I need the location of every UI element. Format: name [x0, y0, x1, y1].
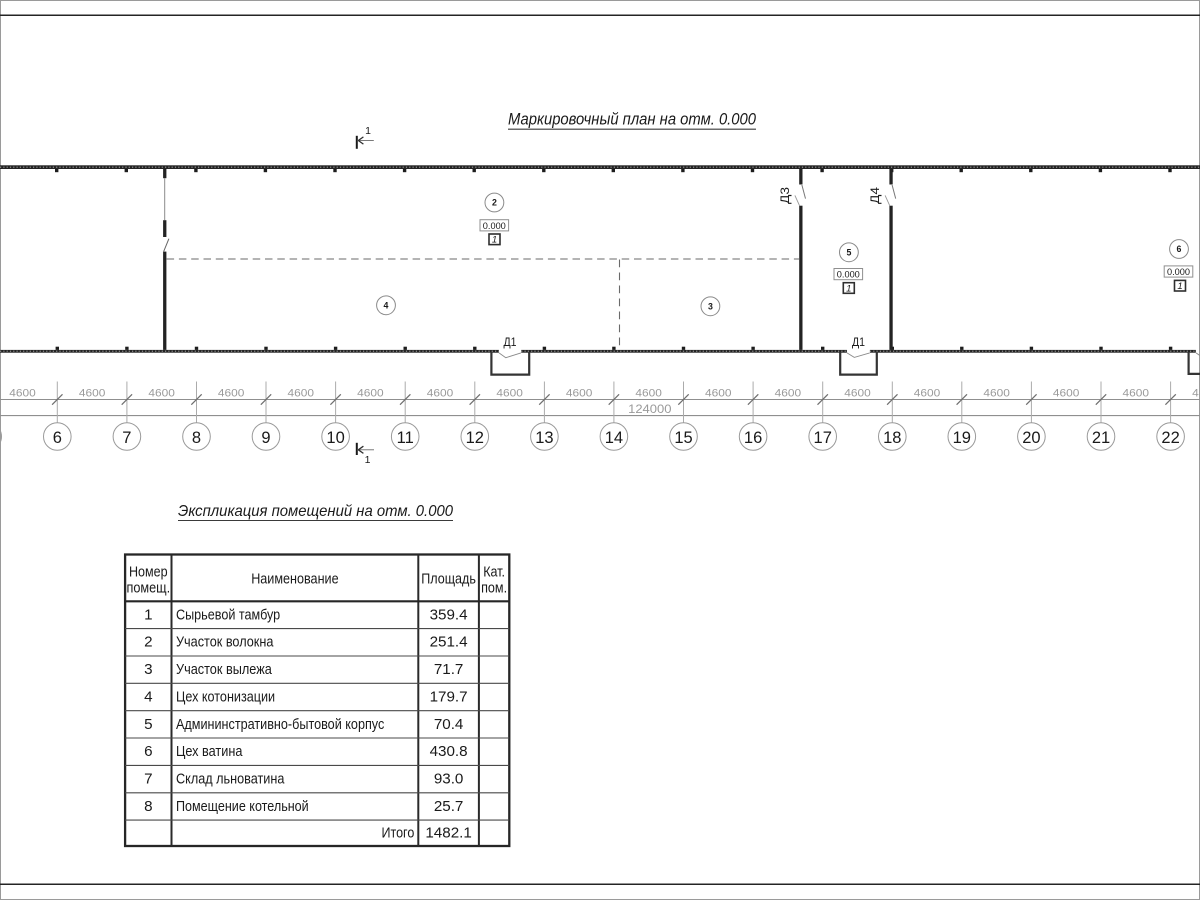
svg-text:1482.1: 1482.1	[425, 824, 471, 841]
svg-text:Экспликация помещений на отм.: Экспликация помещений на отм. 0.000	[178, 503, 453, 520]
svg-text:Цех ватина: Цех ватина	[176, 743, 243, 760]
svg-text:0.000: 0.000	[1167, 267, 1190, 277]
svg-text:4600: 4600	[9, 388, 36, 400]
svg-text:4600: 4600	[496, 388, 523, 400]
svg-text:4600: 4600	[775, 388, 802, 400]
svg-text:16: 16	[744, 429, 762, 447]
svg-text:4600: 4600	[983, 388, 1010, 400]
svg-text:Маркировочный план на отм. 0.0: Маркировочный план на отм. 0.000	[508, 110, 756, 129]
svg-text:18: 18	[883, 429, 901, 447]
svg-text:1: 1	[492, 235, 497, 246]
svg-text:Кат.: Кат.	[483, 564, 505, 581]
svg-text:2: 2	[492, 198, 497, 208]
svg-text:Склад льноватина: Склад льноватина	[176, 771, 285, 788]
svg-text:Сырьевой тамбур: Сырьевой тамбур	[176, 606, 280, 623]
svg-text:179.7: 179.7	[430, 688, 468, 705]
svg-text:4600: 4600	[1123, 388, 1150, 400]
svg-text:11: 11	[397, 429, 414, 447]
svg-text:70.4: 70.4	[434, 716, 464, 733]
svg-text:Админинстративно-бытовой корпу: Админинстративно-бытовой корпус	[176, 716, 385, 733]
svg-text:Участок вылежа: Участок вылежа	[176, 661, 272, 678]
svg-text:9: 9	[261, 429, 270, 447]
svg-text:Участок волокна: Участок волокна	[176, 634, 274, 651]
svg-text:Цех котонизации: Цех котонизации	[176, 688, 275, 705]
svg-text:4600: 4600	[288, 388, 315, 400]
svg-text:3: 3	[144, 661, 152, 678]
svg-text:5: 5	[144, 716, 152, 733]
svg-text:4: 4	[384, 301, 389, 311]
svg-text:4600: 4600	[566, 388, 593, 400]
svg-text:4600: 4600	[148, 388, 175, 400]
svg-text:1: 1	[1177, 281, 1182, 292]
svg-text:6: 6	[144, 743, 152, 760]
svg-text:20: 20	[1022, 429, 1040, 447]
svg-text:4: 4	[144, 688, 152, 705]
svg-text:6: 6	[1177, 244, 1182, 254]
svg-text:430.8: 430.8	[430, 743, 468, 760]
svg-text:4600: 4600	[914, 388, 941, 400]
svg-text:2: 2	[144, 634, 152, 651]
svg-text:Д4: Д4	[868, 187, 882, 204]
svg-text:5: 5	[846, 248, 851, 258]
svg-text:22: 22	[1161, 429, 1179, 447]
svg-text:Номер: Номер	[129, 564, 168, 581]
svg-text:25.7: 25.7	[434, 798, 464, 815]
svg-text:Помещение котельной: Помещение котельной	[176, 798, 309, 815]
svg-text:1: 1	[846, 283, 851, 294]
svg-text:помещ.: помещ.	[126, 580, 170, 597]
svg-text:8: 8	[144, 798, 152, 815]
svg-text:0.000: 0.000	[483, 221, 506, 231]
svg-text:7: 7	[122, 429, 131, 447]
svg-text:93.0: 93.0	[434, 771, 464, 788]
svg-text:15: 15	[674, 429, 692, 447]
svg-text:359.4: 359.4	[430, 606, 468, 623]
svg-text:1: 1	[144, 606, 152, 623]
svg-text:4600: 4600	[844, 388, 871, 400]
svg-text:14: 14	[605, 429, 623, 447]
svg-text:4600: 4600	[635, 388, 662, 400]
svg-text:3: 3	[708, 302, 713, 312]
svg-text:10: 10	[326, 429, 344, 447]
svg-text:71.7: 71.7	[434, 661, 464, 678]
svg-text:17: 17	[814, 429, 832, 447]
svg-text:251.4: 251.4	[430, 634, 468, 651]
svg-text:13: 13	[535, 429, 553, 447]
svg-text:6: 6	[53, 429, 62, 447]
svg-text:Д1: Д1	[852, 337, 865, 349]
svg-text:4600: 4600	[79, 388, 106, 400]
svg-text:Итого: Итого	[382, 824, 415, 841]
svg-text:0.000: 0.000	[837, 270, 860, 280]
svg-text:1: 1	[365, 454, 371, 466]
svg-text:8: 8	[192, 429, 201, 447]
svg-text:12: 12	[466, 429, 484, 447]
svg-text:Д1: Д1	[504, 337, 517, 349]
svg-text:Д3: Д3	[778, 187, 792, 204]
svg-text:7: 7	[144, 771, 152, 788]
svg-text:19: 19	[953, 429, 971, 447]
svg-text:Наименование: Наименование	[251, 571, 338, 588]
svg-text:4600: 4600	[427, 388, 454, 400]
svg-text:21: 21	[1092, 429, 1110, 447]
svg-text:4600: 4600	[705, 388, 732, 400]
svg-text:124000: 124000	[628, 404, 671, 416]
svg-text:4600: 4600	[1192, 388, 1200, 400]
svg-text:4600: 4600	[218, 388, 245, 400]
svg-text:4600: 4600	[357, 388, 384, 400]
svg-text:4600: 4600	[1053, 388, 1080, 400]
svg-text:Площадь: Площадь	[421, 571, 476, 588]
svg-text:пом.: пом.	[481, 580, 507, 597]
svg-text:1: 1	[365, 125, 371, 137]
